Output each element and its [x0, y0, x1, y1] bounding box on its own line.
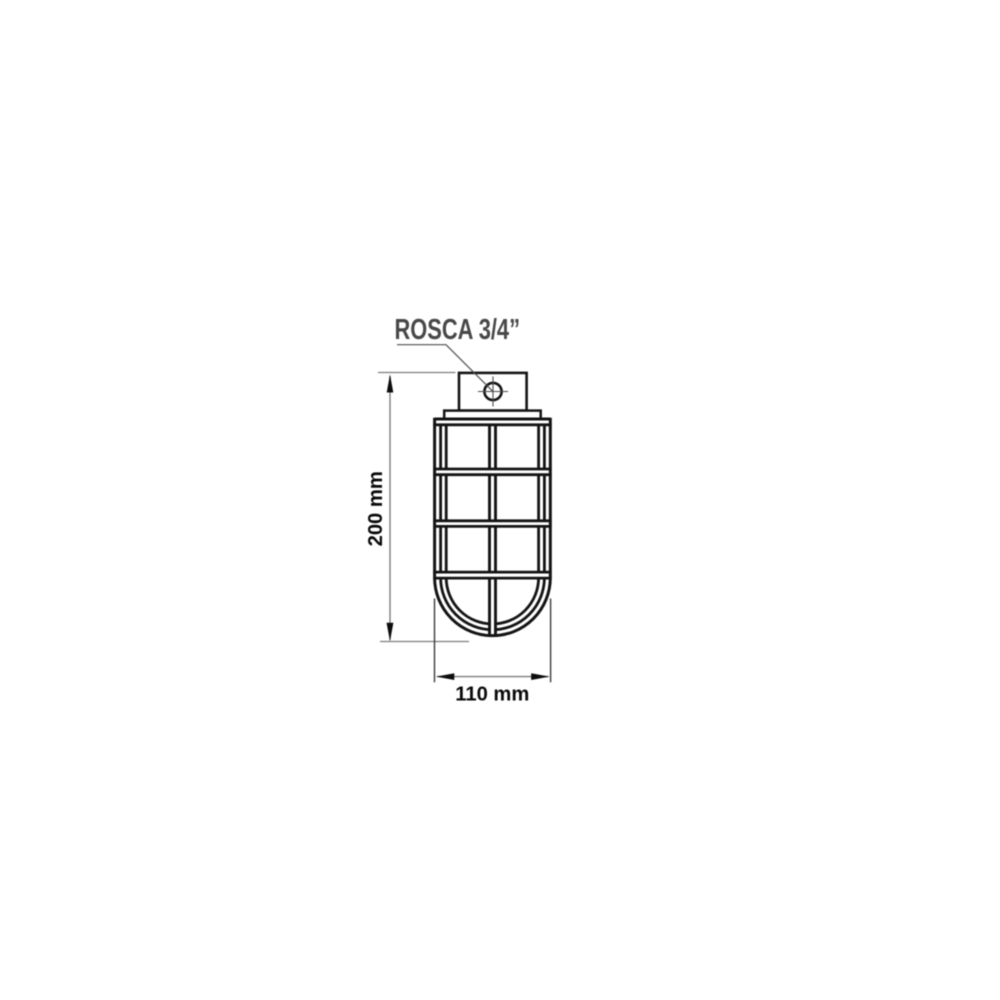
svg-text:200 mm: 200 mm [365, 471, 387, 546]
svg-text:ROSCA 3/4”: ROSCA 3/4” [395, 314, 521, 346]
svg-text:110 mm: 110 mm [455, 684, 529, 706]
